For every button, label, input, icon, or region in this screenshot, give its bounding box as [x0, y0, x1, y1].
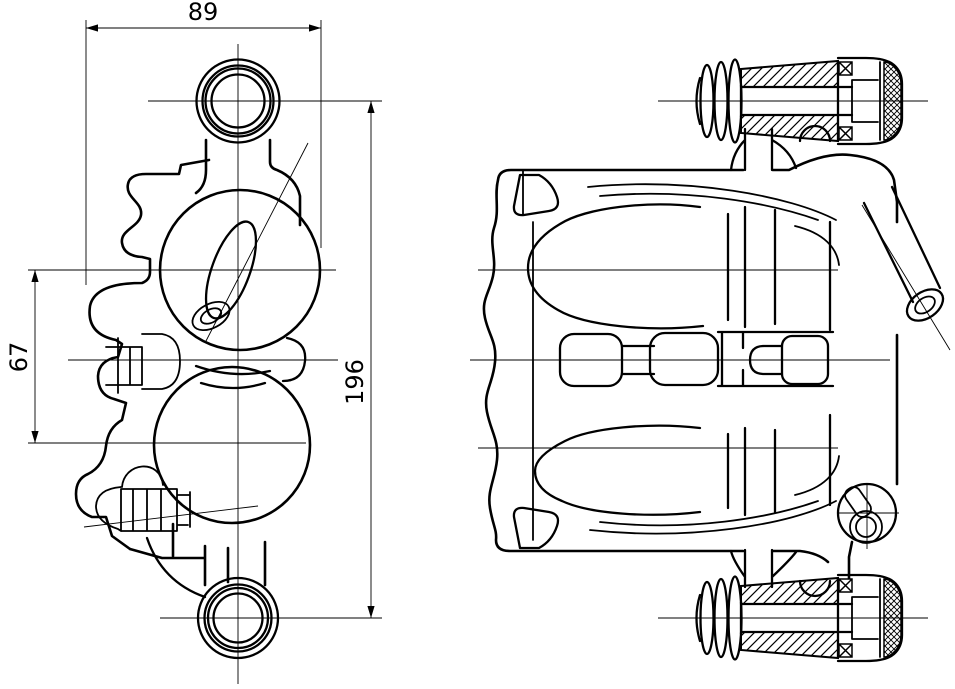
dimension-offset-label: 67 [5, 342, 33, 373]
drawing-canvas: 89 196 67 [0, 0, 955, 689]
drawing-sheet: 89 196 67 [0, 0, 955, 689]
dimension-span-label: 196 [341, 359, 369, 405]
dimension-width-label: 89 [188, 0, 219, 26]
